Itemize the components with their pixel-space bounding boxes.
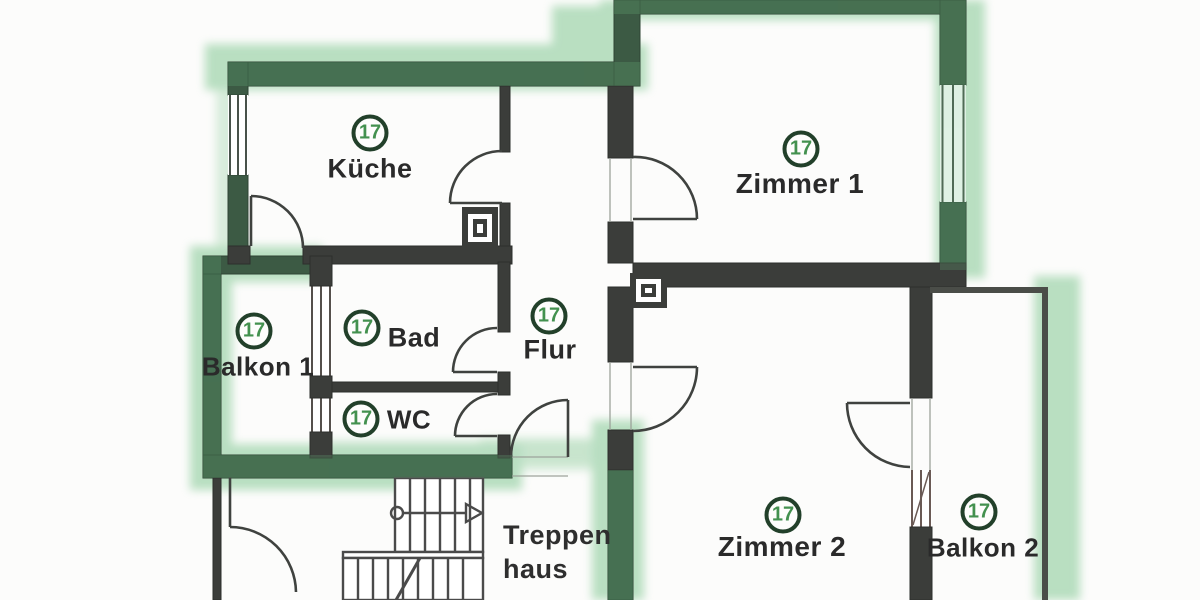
window-wc-to-balkon1 [310, 398, 332, 432]
shaft-symbol-zimmer2 [630, 273, 667, 308]
floorplan-scan: Küche Zimmer 1 Balkon 1 Bad Flur WC Zimm… [0, 0, 1200, 600]
room-label-balkon2: Balkon 2 [927, 533, 1039, 564]
room-label-flur: Flur [524, 335, 577, 366]
wall-flur-east-4 [608, 430, 633, 470]
wall-zimmer1-bottom [633, 263, 966, 287]
door-kueche-flur [450, 151, 502, 203]
unit-badge-wc: 17 [343, 401, 380, 438]
floorplan-svg [0, 0, 1200, 600]
window-kueche-west [228, 95, 248, 175]
room-label-zimmer1: Zimmer 1 [736, 168, 865, 200]
pier-balkon1-bottom [310, 432, 332, 458]
wall-kueche-bottom-stub [228, 246, 250, 264]
stairs [343, 478, 483, 600]
wall-balkon2-top [930, 287, 1048, 293]
shaft-symbol-kueche [462, 207, 498, 249]
pier-balkon1-top [310, 256, 332, 286]
unit-badge-bad: 17 [344, 310, 381, 347]
door-stairwell-neighbor [230, 477, 296, 592]
unit-badge-kueche: 17 [352, 115, 389, 152]
unit-badge-balkon2: 17 [961, 494, 998, 531]
door-flur-bad [453, 328, 497, 372]
wall-wc-east-lower [498, 435, 510, 458]
door-flur-wc [455, 394, 497, 436]
wall-balkon2-east [1042, 287, 1048, 600]
wall-kueche-flur-lower [500, 203, 510, 248]
wall-flur-east-1 [608, 86, 633, 158]
wall-treppenhaus-west [213, 478, 221, 600]
room-label-balkon1: Balkon 1 [202, 352, 314, 383]
wall-bad-east-upper [498, 262, 510, 332]
unit-badge-flur: 17 [531, 298, 568, 335]
floorplan-drawing [0, 0, 1200, 600]
window-zimmer2-to-balkon2 [910, 470, 932, 527]
unit-badge-balkon1: 17 [236, 313, 273, 350]
door-thresholds [512, 158, 930, 476]
wall-zimmer2-east-upper [910, 287, 932, 398]
room-label-treppenhaus: Treppen haus [503, 518, 612, 586]
door-kueche-balkon1 [251, 196, 303, 248]
wall-bad-wc-divider [332, 382, 498, 392]
wall-flur-east-2 [608, 222, 633, 263]
treppenhaus-line1: Treppen [503, 518, 612, 552]
wall-kueche-flur-upper [500, 86, 510, 152]
room-label-bad: Bad [388, 323, 441, 354]
door-zimmer2-balkon2 [847, 403, 910, 467]
room-label-wc: WC [387, 405, 431, 436]
wall-flur-east-3 [608, 287, 633, 362]
room-label-zimmer2: Zimmer 2 [718, 531, 847, 563]
unit-badge-zimmer1: 17 [783, 131, 820, 168]
room-label-kueche: Küche [327, 154, 412, 185]
unit-badge-zimmer2: 17 [765, 497, 802, 534]
wall-bad-wc-east-mid [498, 372, 510, 395]
treppenhaus-line2: haus [503, 552, 612, 586]
door-flur-zimmer1 [633, 157, 697, 219]
